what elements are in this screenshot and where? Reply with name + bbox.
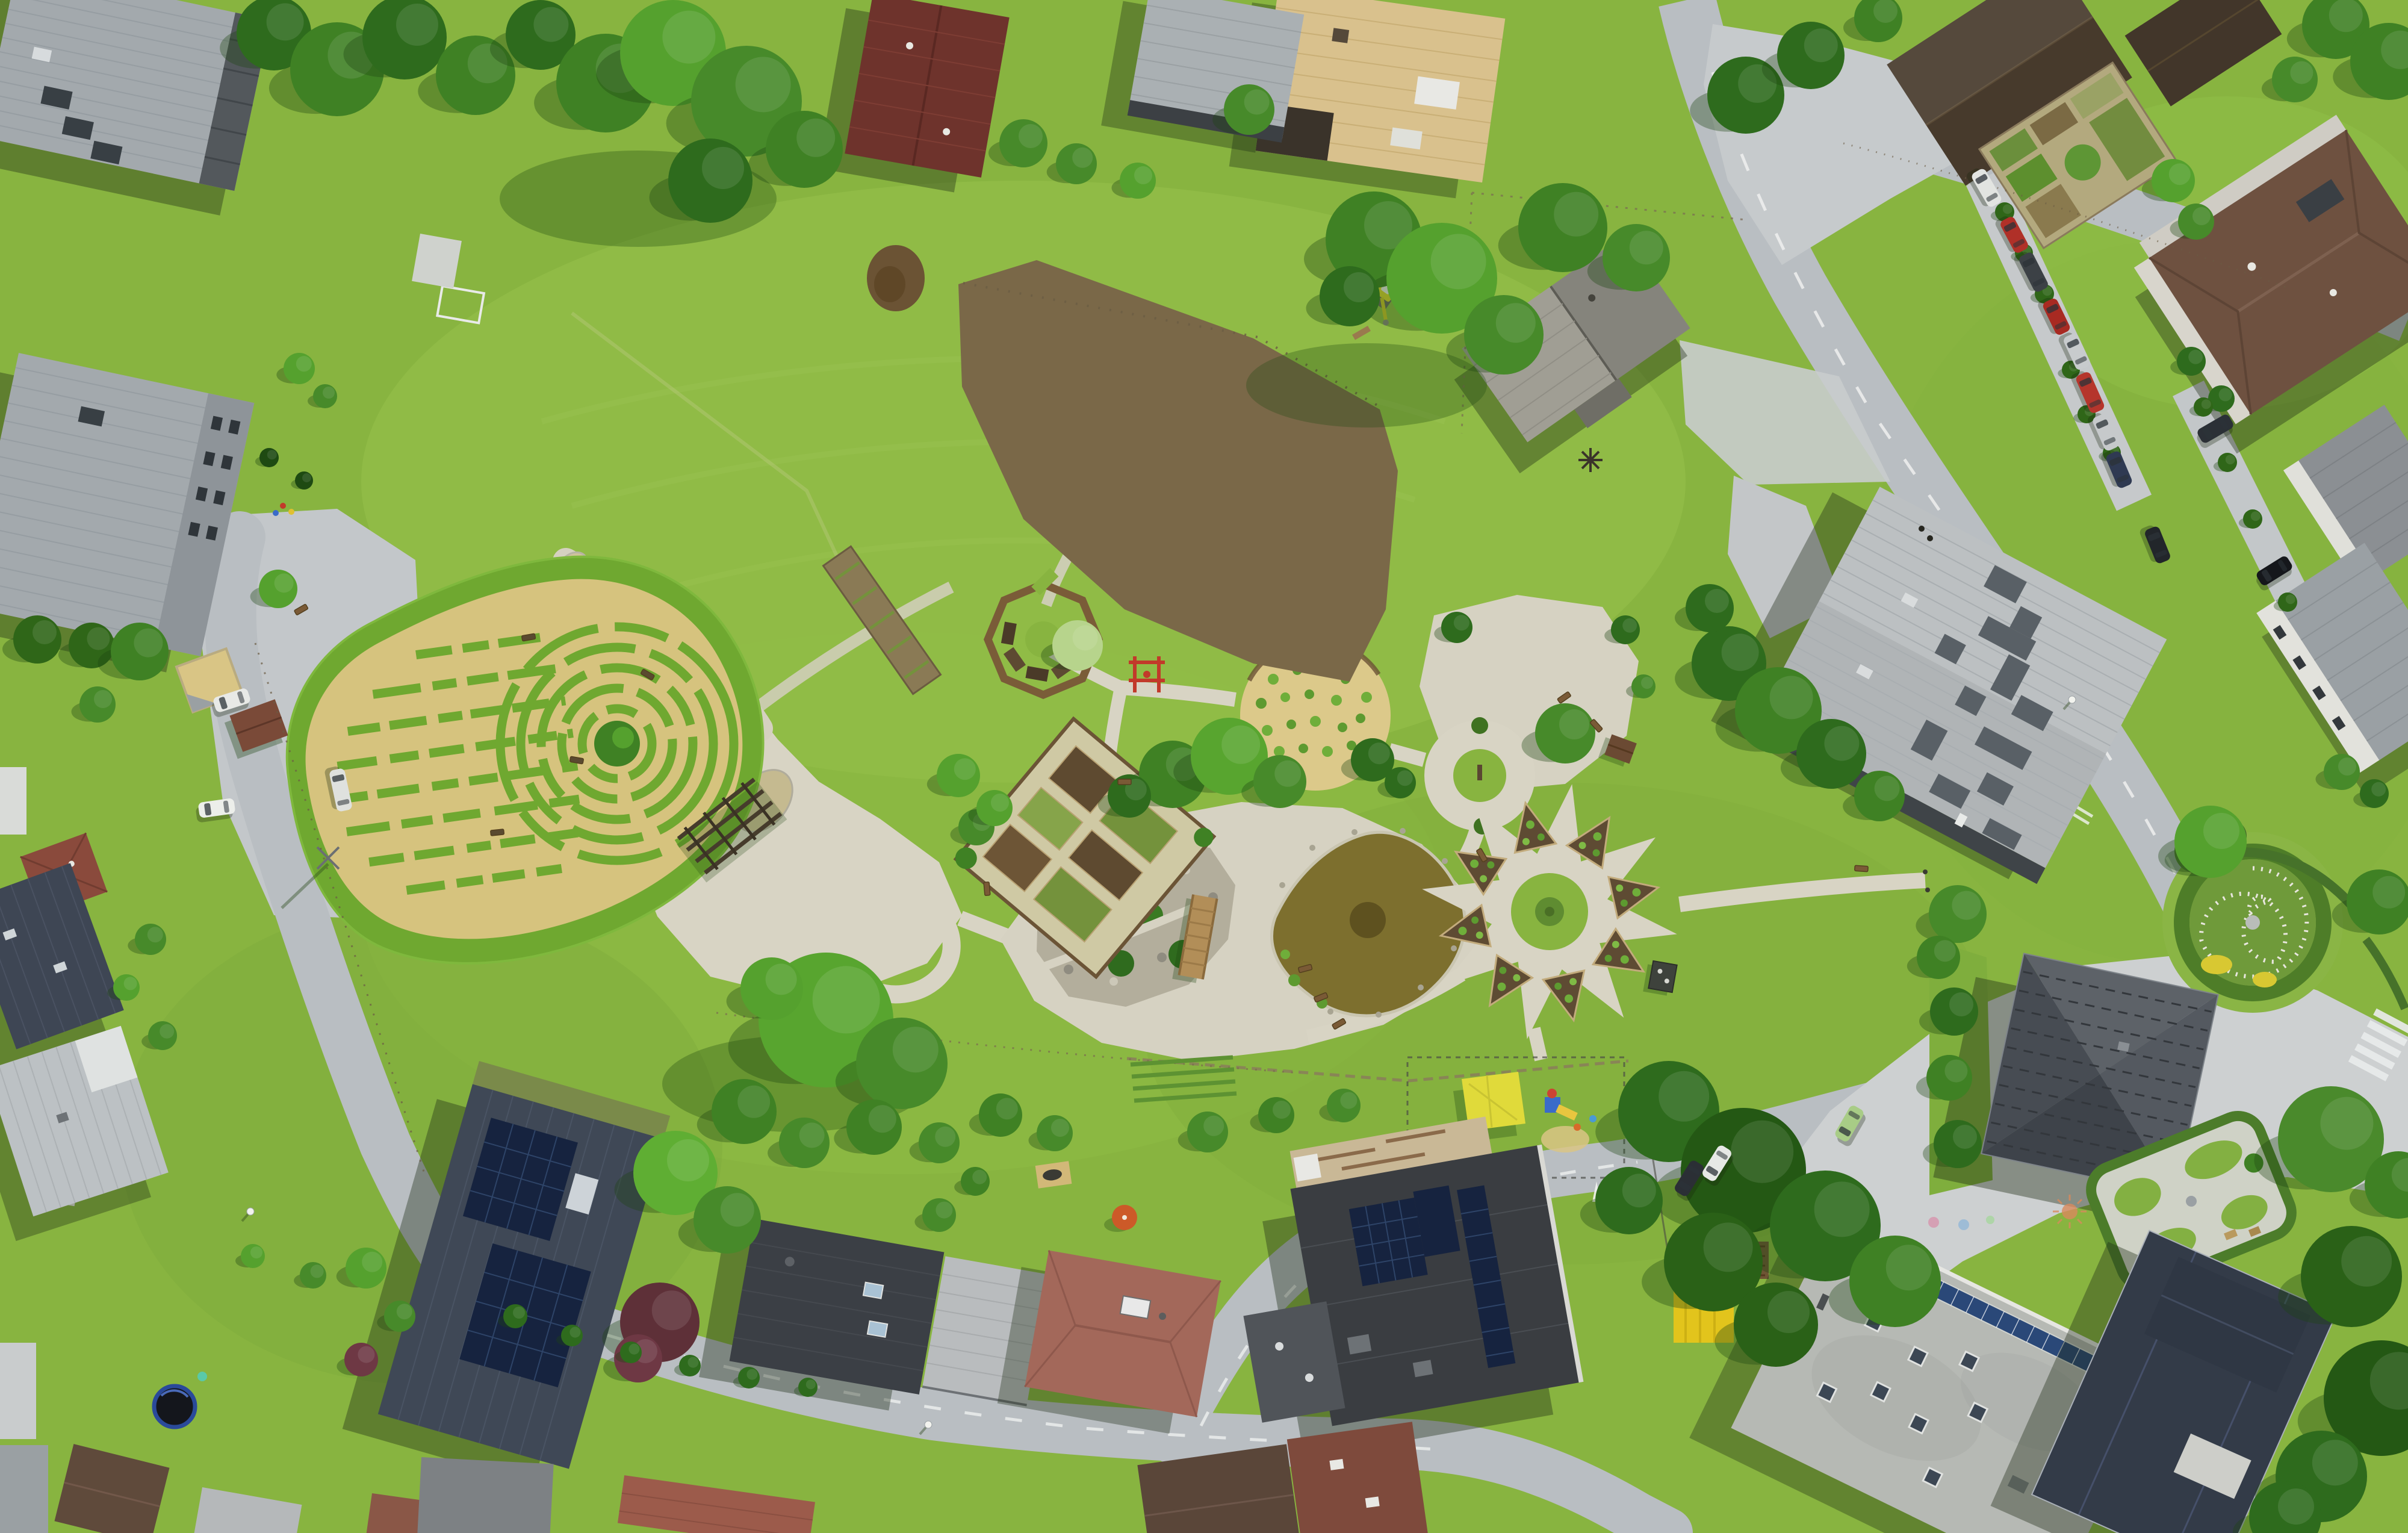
leftedge-strip-bldg xyxy=(0,1343,36,1439)
scene-canvas xyxy=(0,0,2408,1533)
roof xyxy=(1287,1422,1428,1533)
tarp xyxy=(1414,76,1460,110)
junction-post xyxy=(1477,765,1482,780)
patio-topleft xyxy=(412,234,462,288)
pond-plant xyxy=(1280,950,1290,959)
stone xyxy=(1327,1009,1333,1015)
house-redbrown-se xyxy=(1287,1422,1428,1533)
spring-toy xyxy=(1574,1124,1581,1131)
path-junction-sand xyxy=(1389,750,1424,760)
house-salmon xyxy=(998,1246,1221,1438)
roof-window xyxy=(1329,1459,1344,1470)
stone xyxy=(1376,1012,1382,1018)
pond-deep xyxy=(1350,902,1386,938)
spiral-center-stones xyxy=(2245,915,2260,930)
park-gate-post xyxy=(1925,888,1930,892)
roof-window xyxy=(1365,1496,1380,1508)
chalk-dot xyxy=(1986,1216,1994,1224)
shrub xyxy=(1280,692,1290,702)
chalk-dot xyxy=(1958,1219,1969,1230)
bench xyxy=(1855,865,1869,872)
yellow-flowers xyxy=(2201,955,2232,974)
apiary xyxy=(1648,961,1677,992)
stone xyxy=(1418,984,1424,990)
cyclist xyxy=(1927,535,1933,541)
skylight xyxy=(863,1283,883,1299)
stone xyxy=(1109,977,1118,986)
spring-toy xyxy=(1589,1115,1597,1122)
darkred-roof-bldg xyxy=(818,0,1009,196)
compost-texture xyxy=(874,266,905,302)
spider-sculpture xyxy=(1578,448,1603,472)
stone xyxy=(1157,953,1167,962)
stone xyxy=(1351,829,1358,835)
shrub xyxy=(1331,695,1342,706)
small-white-bldg xyxy=(0,767,26,835)
stone xyxy=(1442,858,1448,864)
shrub xyxy=(1361,692,1372,703)
cyclist xyxy=(1919,526,1925,532)
shrub xyxy=(1256,698,1267,709)
bike xyxy=(273,510,279,516)
sun-lounger xyxy=(1035,1161,1072,1188)
bldg-grayflat-b xyxy=(417,1457,553,1533)
sun-disc xyxy=(2062,1204,2078,1219)
parasol-top xyxy=(1122,1215,1127,1220)
stone xyxy=(1279,882,1285,888)
shrub xyxy=(1262,725,1273,736)
roof-box xyxy=(1413,1360,1433,1377)
shrub xyxy=(1286,720,1296,729)
yellow-flowers xyxy=(2253,972,2277,987)
garden-ball xyxy=(197,1372,207,1381)
shrub xyxy=(1322,746,1333,757)
stone xyxy=(1309,845,1315,851)
bench xyxy=(984,882,990,896)
frame-dot xyxy=(1143,671,1150,678)
shrub xyxy=(1268,674,1279,685)
park-gate-post xyxy=(1923,869,1928,874)
junction-hedge xyxy=(1471,717,1488,734)
stone xyxy=(1064,965,1073,974)
tarp-white xyxy=(1294,1154,1321,1181)
bike xyxy=(288,509,294,515)
bench xyxy=(1118,779,1131,785)
stone xyxy=(1400,828,1406,834)
chalk-dot xyxy=(1928,1217,1939,1228)
aerial-photo-village-park xyxy=(0,0,2408,1533)
skylight xyxy=(867,1321,887,1337)
shrub xyxy=(1356,714,1365,723)
chimney-box xyxy=(1332,28,1349,43)
shrub xyxy=(1310,716,1321,727)
path-star-south xyxy=(1534,1028,1541,1060)
shrub xyxy=(1305,689,1314,699)
pond-plant xyxy=(1288,974,1300,986)
maze-center-tree-light xyxy=(612,727,634,748)
chalk-sun xyxy=(2053,1195,2087,1228)
sandbox xyxy=(1541,1126,1589,1152)
apiary-box xyxy=(1643,960,1677,997)
shrub xyxy=(1299,744,1308,753)
stone xyxy=(1451,945,1457,951)
bench xyxy=(491,829,504,836)
trampoline xyxy=(154,1386,195,1427)
shrub xyxy=(1338,723,1347,732)
play-roof xyxy=(1547,1089,1557,1098)
trampoline-ring xyxy=(154,1386,195,1427)
leftedge-strip-bldg xyxy=(0,1445,48,1533)
bike xyxy=(280,503,286,509)
